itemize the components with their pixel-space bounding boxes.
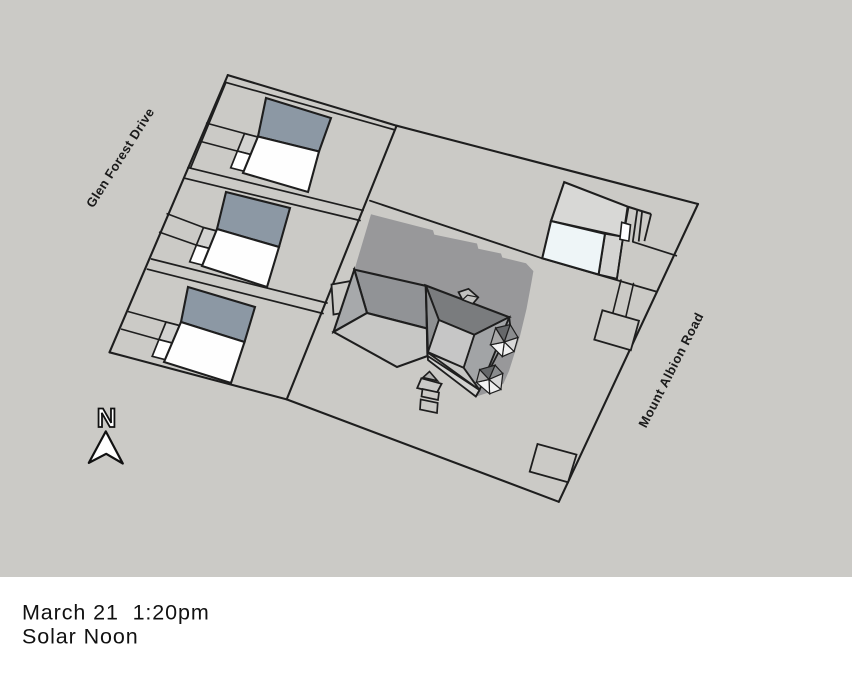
svg-text:N: N <box>97 403 117 433</box>
svg-text:Solar Noon: Solar Noon <box>22 625 139 649</box>
svg-text:March 21 1:20pm: March 21 1:20pm <box>22 601 210 625</box>
